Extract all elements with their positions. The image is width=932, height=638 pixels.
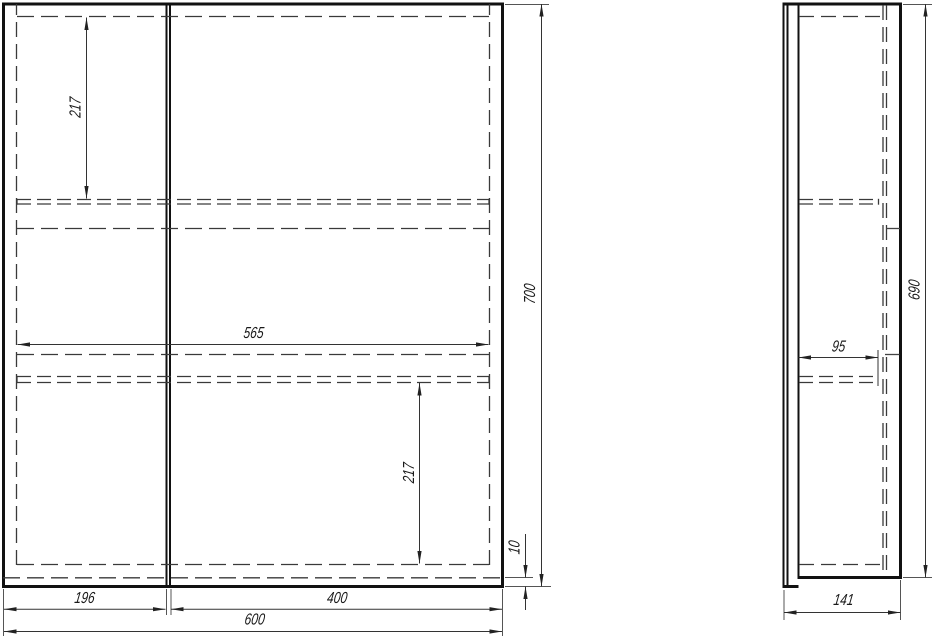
svg-text:217: 217 — [401, 461, 419, 485]
svg-text:95: 95 — [831, 338, 847, 356]
svg-text:400: 400 — [326, 590, 349, 608]
svg-text:10: 10 — [506, 539, 524, 555]
svg-text:141: 141 — [832, 592, 855, 610]
svg-text:217: 217 — [67, 95, 85, 119]
svg-text:700: 700 — [522, 283, 540, 306]
svg-text:196: 196 — [73, 590, 96, 608]
svg-text:600: 600 — [243, 611, 266, 629]
svg-text:565: 565 — [242, 325, 265, 343]
svg-text:690: 690 — [906, 279, 924, 302]
